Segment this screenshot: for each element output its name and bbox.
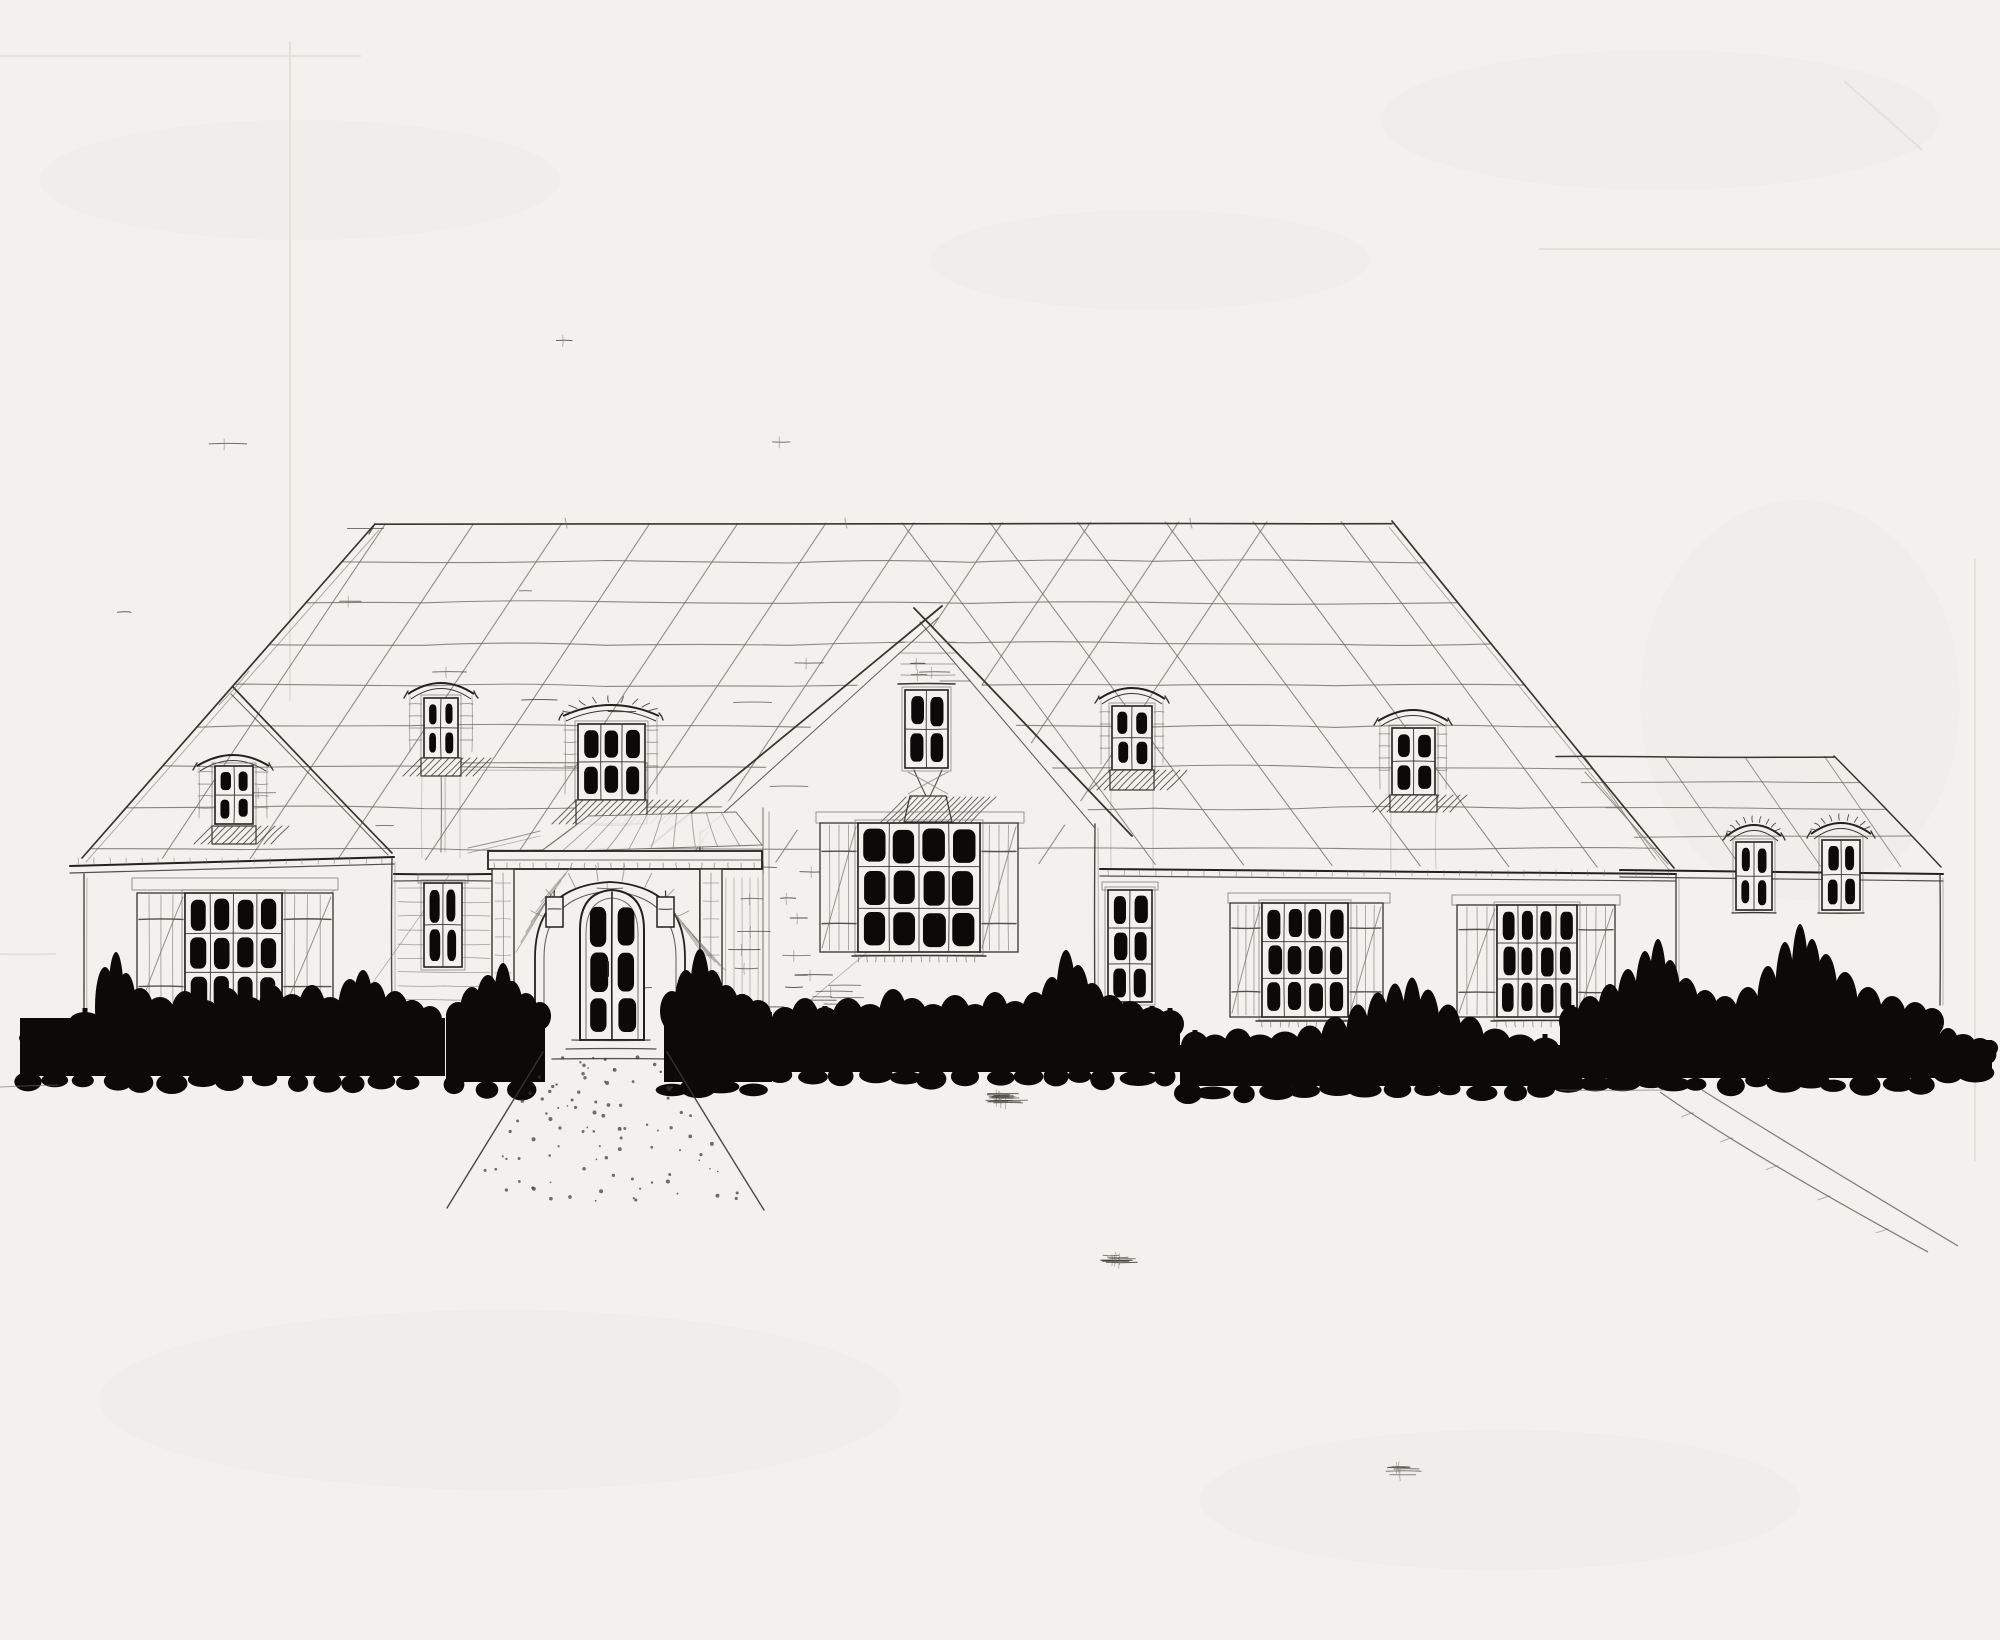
dormer-right xyxy=(1373,710,1467,869)
window-right-of-gable xyxy=(1102,882,1158,1005)
roof-edges xyxy=(82,518,1674,872)
shrub-row xyxy=(1933,1028,1998,1083)
gable-great-window xyxy=(816,812,1024,962)
dormer-left xyxy=(403,683,491,858)
right-center-window-a xyxy=(1228,893,1390,1027)
left-gable-window xyxy=(193,755,289,844)
porch-roof-block xyxy=(540,812,762,852)
gable-upper-window xyxy=(881,683,996,822)
paper-texture xyxy=(40,50,1960,1570)
architectural-sketch-page xyxy=(0,0,2000,1640)
shrub-row xyxy=(656,949,772,1098)
driveway xyxy=(0,1085,1958,1252)
elevation-drawing-canvas xyxy=(0,0,2000,1640)
recessed-narrow-window xyxy=(418,875,468,970)
